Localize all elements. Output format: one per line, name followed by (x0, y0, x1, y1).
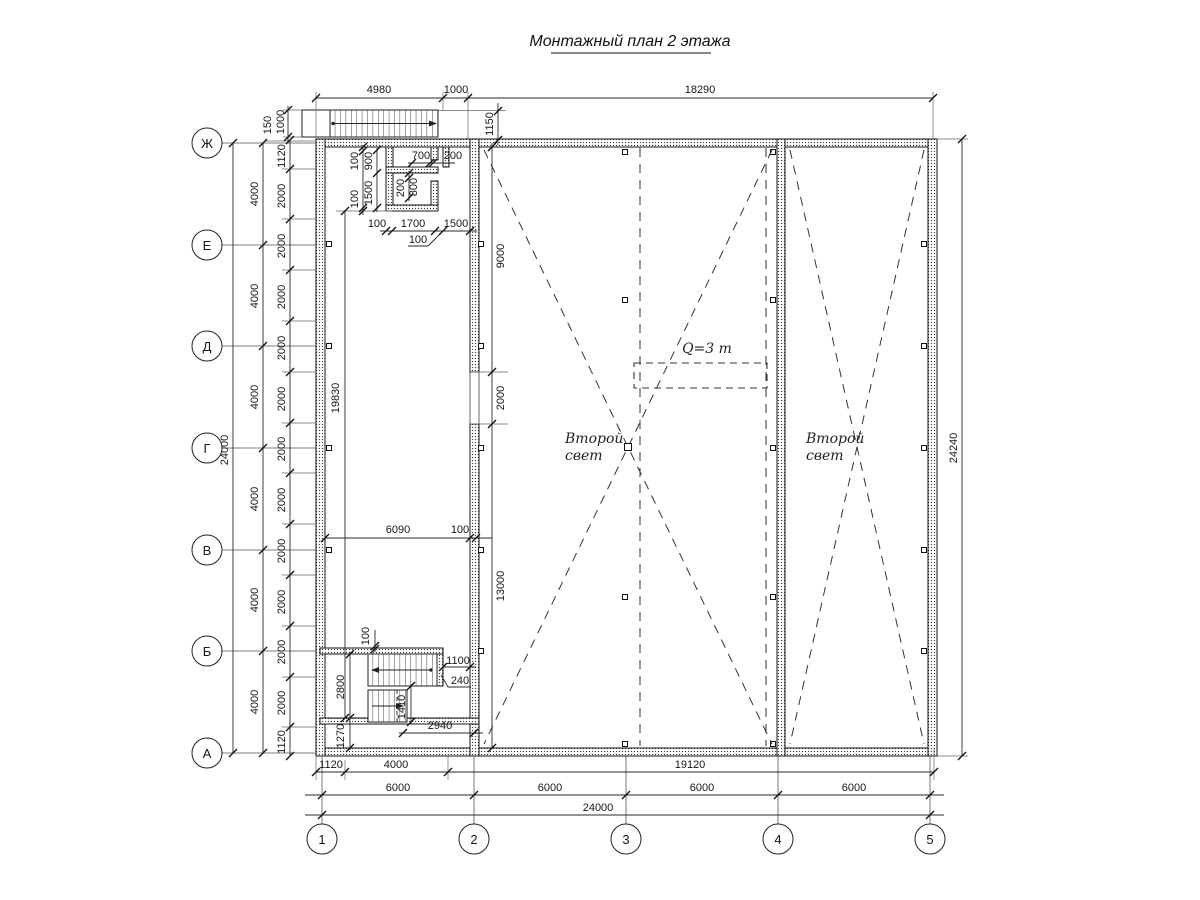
svg-text:100: 100 (349, 152, 361, 170)
annotations: Q=3 т Второй свет Второй свет (564, 341, 864, 464)
svg-text:2000: 2000 (276, 387, 288, 411)
svg-text:5: 5 (926, 832, 933, 847)
dim-1150: 1150 (484, 112, 496, 136)
svg-text:3: 3 (622, 832, 629, 847)
svg-text:1500: 1500 (363, 181, 375, 205)
svg-text:2800: 2800 (335, 675, 347, 699)
svg-text:6000: 6000 (842, 782, 866, 794)
svg-text:6000: 6000 (538, 782, 562, 794)
svg-text:2000: 2000 (276, 336, 288, 360)
svg-text:100: 100 (451, 524, 469, 536)
dim-6090: 6090 (386, 524, 410, 536)
sheet-title: Монтажный план 2 этажа (529, 33, 730, 50)
interior-walls (320, 147, 479, 724)
svg-text:6000: 6000 (386, 782, 410, 794)
shaft-stub-north (431, 147, 438, 160)
svg-text:2000: 2000 (276, 184, 288, 208)
svg-text:2000: 2000 (276, 488, 288, 512)
svg-text:Б: Б (203, 644, 212, 659)
wall-axis4 (777, 139, 785, 756)
void-right-label-1: Второй (805, 431, 864, 447)
dim-stair-150: 150 (262, 116, 274, 134)
svg-text:100: 100 (360, 627, 372, 645)
dim-top-1000: 1000 (444, 84, 468, 96)
void-cross-left (484, 150, 772, 744)
wall-left (316, 139, 325, 756)
svg-text:100: 100 (368, 218, 386, 230)
svg-text:Е: Е (203, 238, 212, 253)
wall-top (316, 139, 937, 147)
svg-text:2000: 2000 (276, 590, 288, 614)
svg-text:1270: 1270 (335, 724, 347, 748)
svg-text:4000: 4000 (384, 759, 408, 771)
dim-9000: 9000 (495, 244, 507, 268)
void-left-label-1: Второй (564, 431, 623, 447)
svg-text:А: А (203, 746, 212, 761)
dim-13000: 13000 (495, 571, 507, 602)
svg-text:Г: Г (203, 441, 210, 456)
wall-axis2-opening (470, 372, 479, 424)
svg-text:24000: 24000 (583, 802, 614, 814)
wall-bottom (316, 748, 937, 756)
void-right-label-2: свет (806, 448, 844, 464)
svg-text:4000: 4000 (249, 690, 261, 714)
dim-top-18290: 18290 (685, 84, 716, 96)
wall-right (928, 139, 937, 756)
svg-text:2: 2 (470, 832, 477, 847)
stairwell-wall-north (320, 648, 443, 654)
wall-axis2-lower (470, 424, 479, 756)
dim-stair-1000: 1000 (275, 110, 287, 134)
svg-text:2940: 2940 (428, 720, 452, 732)
axis-bubbles-left: Ж Е Д Г В Б А (192, 128, 222, 768)
svg-text:4000: 4000 (249, 487, 261, 511)
svg-text:100: 100 (409, 234, 427, 246)
svg-text:4000: 4000 (249, 284, 261, 308)
drawing-sheet: Монтажный план 2 этажа (0, 0, 1200, 900)
svg-text:4000: 4000 (249, 182, 261, 206)
dim-2000: 2000 (495, 386, 507, 410)
svg-text:800: 800 (408, 178, 420, 196)
svg-text:1700: 1700 (401, 218, 425, 230)
svg-text:Д: Д (203, 339, 212, 354)
wall-axis2-upper (470, 139, 479, 372)
svg-text:Ж: Ж (201, 136, 213, 151)
svg-text:240: 240 (451, 675, 469, 687)
svg-text:2000: 2000 (276, 234, 288, 258)
crane-runway (634, 148, 767, 746)
svg-text:2000: 2000 (276, 437, 288, 461)
svg-text:В: В (203, 543, 212, 558)
svg-text:200: 200 (395, 179, 407, 197)
crane-bridge (634, 363, 767, 388)
svg-text:1120: 1120 (276, 144, 288, 168)
svg-text:1500: 1500 (444, 218, 468, 230)
void-center-column (625, 444, 632, 451)
svg-text:1410: 1410 (396, 695, 408, 719)
svg-text:1120: 1120 (319, 759, 343, 771)
svg-text:4: 4 (774, 832, 781, 847)
dim-top-4980: 4980 (367, 84, 391, 96)
stair-top (302, 110, 438, 137)
svg-text:4000: 4000 (249, 385, 261, 409)
axis-bubbles-bottom: 1 2 3 4 5 (307, 824, 945, 854)
void-cross-right (790, 150, 924, 744)
crane-capacity-label: Q=3 т (682, 341, 732, 357)
svg-text:2000: 2000 (276, 691, 288, 715)
svg-text:900: 900 (363, 152, 375, 170)
shaft-wall-south (386, 205, 438, 211)
svg-text:19120: 19120 (675, 759, 706, 771)
svg-text:2000: 2000 (276, 640, 288, 664)
svg-text:700: 700 (412, 150, 430, 162)
shaft-wall-west (386, 147, 393, 211)
svg-text:1: 1 (318, 832, 325, 847)
floor-plan-canvas: Монтажный план 2 этажа (0, 0, 1200, 900)
svg-text:4000: 4000 (249, 588, 261, 612)
svg-text:1100: 1100 (446, 655, 470, 667)
svg-text:100: 100 (349, 190, 361, 208)
dim-19830: 19830 (330, 383, 342, 414)
svg-text:6000: 6000 (690, 782, 714, 794)
svg-text:2000: 2000 (276, 539, 288, 563)
void-left-label-2: свет (565, 448, 603, 464)
svg-text:2000: 2000 (276, 285, 288, 309)
svg-text:1120: 1120 (276, 730, 288, 754)
dim-right-24240: 24240 (948, 433, 960, 464)
svg-text:200: 200 (444, 150, 462, 162)
